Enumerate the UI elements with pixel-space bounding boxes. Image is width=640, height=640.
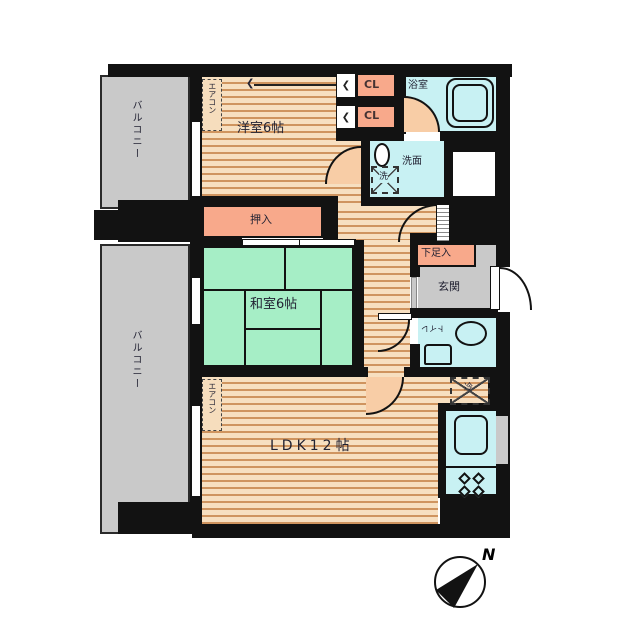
kitchen-sink-icon bbox=[454, 415, 488, 455]
balcony-bottom-label: バルコニー bbox=[130, 330, 141, 390]
cl-upper-door: ❮ bbox=[336, 73, 356, 98]
kitchen-window bbox=[496, 414, 508, 466]
wall-cl-bottom bbox=[336, 129, 404, 141]
washitsu-label: 和室6帖 bbox=[250, 298, 297, 312]
washbasin-icon bbox=[374, 143, 390, 167]
wall-top bbox=[108, 64, 512, 77]
wall-washroom-west bbox=[361, 131, 370, 206]
fusuma-sliding-door bbox=[242, 239, 356, 246]
bathtub-inner bbox=[452, 84, 488, 122]
wall-left-a bbox=[190, 64, 202, 122]
bathroom-label: 浴室 bbox=[408, 80, 428, 91]
toilet-bowl-icon bbox=[455, 321, 487, 346]
balcony-top bbox=[100, 75, 190, 209]
bathtub bbox=[446, 78, 494, 128]
wall-left-c bbox=[190, 324, 202, 406]
cl-upper-label: CL bbox=[364, 79, 379, 91]
toilet-door-leaf bbox=[378, 313, 412, 320]
aircon-yoshitsu-label: エアコン bbox=[207, 82, 216, 114]
aircon-yoshitsu: エアコン bbox=[202, 79, 222, 131]
washroom-label: 洗面 bbox=[402, 156, 422, 167]
wall-toilet-west-low bbox=[410, 344, 420, 368]
window-yoshitsu bbox=[190, 122, 202, 198]
hallway-vertical bbox=[364, 240, 410, 377]
wall-washitsu-south bbox=[192, 367, 368, 377]
wall-oshiire-top bbox=[192, 196, 338, 206]
kitchen-counter-line bbox=[446, 466, 496, 468]
toilet-tank-icon bbox=[424, 344, 452, 365]
balcony-bottom bbox=[100, 244, 190, 534]
tatami-line bbox=[204, 289, 352, 291]
wall-toilet-top bbox=[410, 308, 498, 318]
cl-lower-label: CL bbox=[364, 110, 379, 122]
cl-lower-door: ❮ bbox=[336, 105, 356, 129]
ldk-label: LDK12帖 bbox=[270, 439, 354, 454]
entrance-door-arc bbox=[500, 267, 532, 310]
chevron-left-icon: ❮ bbox=[246, 78, 254, 89]
wall-toilet-south bbox=[404, 367, 500, 377]
tatami-line bbox=[246, 328, 320, 330]
pipe-space bbox=[453, 152, 495, 196]
washer-label: 洗 bbox=[379, 173, 388, 183]
tatami-line bbox=[284, 248, 286, 289]
block-corner-se bbox=[440, 494, 510, 528]
north-label: N bbox=[482, 546, 495, 564]
entrance-door-leaf bbox=[490, 266, 500, 310]
wall-bath-wash-east bbox=[440, 131, 498, 141]
tatami-line bbox=[320, 291, 322, 365]
window-washitsu bbox=[190, 278, 202, 324]
wall-right-upper bbox=[496, 64, 510, 267]
genkan-label: 玄関 bbox=[438, 281, 460, 293]
chevron-left-icon: ❮ bbox=[342, 80, 350, 91]
window-ldk bbox=[190, 406, 202, 496]
balcony-top-label: バルコニー bbox=[130, 100, 141, 160]
floor-plan: バルコニー バルコニー bbox=[0, 0, 640, 640]
washroom-door-leaf bbox=[436, 204, 450, 242]
oshiire-label: 押入 bbox=[250, 214, 272, 226]
aircon-ldk-label: エアコン bbox=[207, 382, 216, 414]
cl-upper-bifold-line bbox=[254, 84, 336, 86]
wall-washitsu-east bbox=[354, 240, 364, 370]
aircon-ldk: エアコン bbox=[202, 379, 222, 431]
chevron-left-icon: ❮ bbox=[342, 112, 350, 123]
yoshitsu-label: 洋室6帖 bbox=[237, 122, 284, 136]
wall-washitsu-top bbox=[192, 238, 242, 247]
fridge-label: 冷 bbox=[464, 384, 473, 394]
wall-left-d bbox=[190, 496, 202, 528]
pillar-bump bbox=[94, 210, 120, 240]
toilet-label: トイレ bbox=[421, 323, 445, 332]
getabako-label: 下足入 bbox=[421, 248, 451, 259]
wall-kitchen-west bbox=[438, 410, 446, 498]
